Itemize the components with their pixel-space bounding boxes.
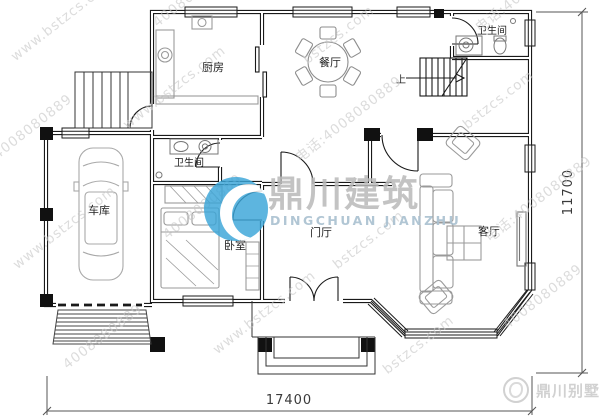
floor-plan-page: 厨房 餐厅 卫生间 卫生间 车库 卧室 门厅 客厅 上 17400 11700 … bbox=[0, 0, 616, 418]
window-top-2 bbox=[293, 7, 352, 17]
window-bay-left-diagonal bbox=[368, 298, 408, 337]
living-furniture bbox=[418, 125, 526, 315]
column bbox=[417, 128, 433, 141]
window-bay-south bbox=[405, 329, 497, 338]
stair-interior bbox=[406, 58, 467, 96]
label-bedroom: 卧室 bbox=[224, 238, 246, 252]
label-living: 客厅 bbox=[478, 224, 500, 238]
label-dining: 餐厅 bbox=[319, 55, 341, 69]
window-garage-north bbox=[62, 128, 89, 138]
column bbox=[150, 337, 165, 352]
window-bedroom-south bbox=[183, 296, 233, 306]
kitchen-fixtures bbox=[156, 16, 258, 104]
column bbox=[40, 127, 53, 140]
label-foyer: 门厅 bbox=[310, 225, 332, 239]
entrance-double-door bbox=[285, 277, 343, 306]
window-top-3 bbox=[397, 7, 430, 17]
column bbox=[434, 9, 444, 18]
kitchen-sliding-door bbox=[256, 45, 268, 97]
column bbox=[40, 294, 53, 307]
bedroom-furniture bbox=[161, 186, 259, 290]
column bbox=[40, 208, 53, 221]
dimension-width-label: 17400 bbox=[266, 393, 312, 408]
garage-door bbox=[56, 300, 144, 310]
driveway-ramp bbox=[53, 310, 151, 344]
stair-exterior-side bbox=[75, 72, 152, 128]
porch-steps bbox=[252, 301, 375, 374]
dimension-lines bbox=[43, 8, 588, 415]
label-bath-mid: 卫生间 bbox=[174, 156, 204, 169]
column bbox=[361, 338, 375, 352]
dimension-height-label: 11700 bbox=[561, 169, 576, 215]
bedroom-door bbox=[233, 190, 266, 221]
dining-living-door bbox=[381, 131, 419, 171]
window-living-right-2 bbox=[525, 263, 535, 290]
label-kitchen: 厨房 bbox=[202, 61, 224, 74]
label-bath-top: 卫生间 bbox=[477, 24, 507, 37]
window-living-right-1 bbox=[525, 145, 535, 172]
bath-top-door bbox=[448, 16, 478, 46]
foyer-dining-door bbox=[280, 152, 314, 188]
walls bbox=[46, 12, 530, 334]
window-bath-right bbox=[525, 20, 535, 46]
label-garage: 车库 bbox=[88, 203, 110, 217]
doors bbox=[56, 16, 478, 310]
floor-plan-drawing: 厨房 餐厅 卫生间 卫生间 车库 卧室 门厅 客厅 上 17400 11700 bbox=[0, 0, 616, 418]
column bbox=[258, 338, 272, 352]
label-stair-up: 上 bbox=[396, 74, 406, 86]
column bbox=[364, 128, 380, 141]
